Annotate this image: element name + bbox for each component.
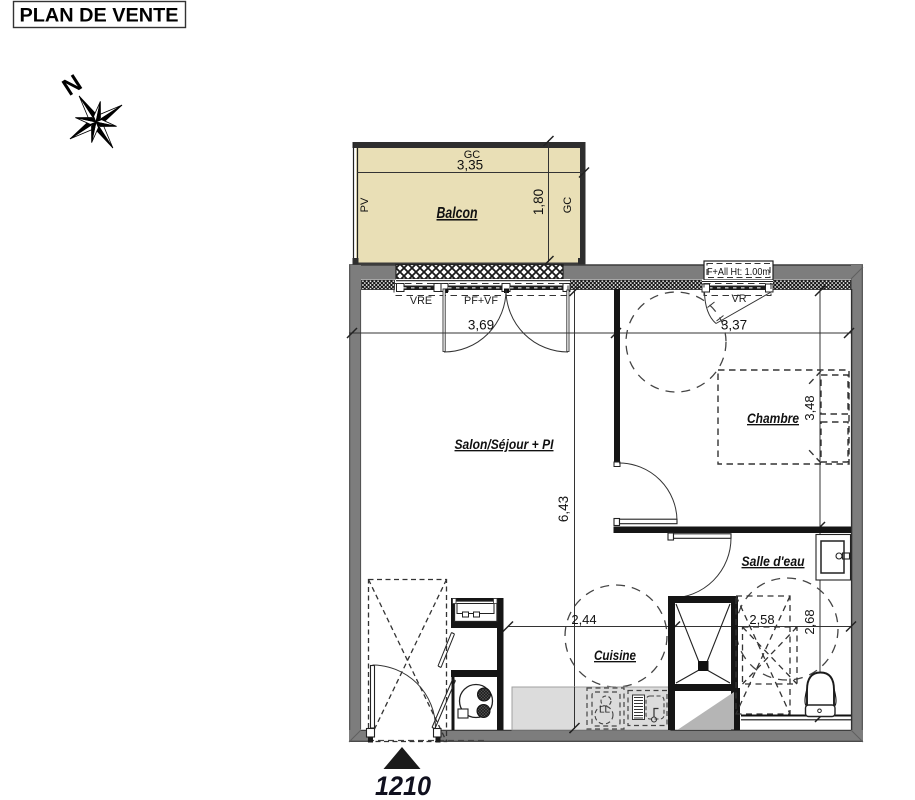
svg-text:6,43: 6,43 <box>556 496 571 522</box>
svg-text:2,58: 2,58 <box>749 612 774 627</box>
svg-text:3,69: 3,69 <box>468 318 494 333</box>
svg-text:GC: GC <box>562 197 574 214</box>
svg-text:Chambre: Chambre <box>747 411 799 426</box>
svg-text:2,44: 2,44 <box>571 612 596 627</box>
svg-text:LL: LL <box>599 705 611 716</box>
svg-text:3,35: 3,35 <box>457 158 483 173</box>
svg-text:Salle d'eau: Salle d'eau <box>742 554 806 569</box>
svg-text:VRE: VRE <box>410 295 432 307</box>
svg-text:Salon/Séjour + PI: Salon/Séjour + PI <box>455 437 554 452</box>
svg-text:F+All Ht: 1.00m: F+All Ht: 1.00m <box>707 267 770 278</box>
svg-text:3,37: 3,37 <box>721 318 747 333</box>
svg-text:PLAN DE VENTE: PLAN DE VENTE <box>20 5 179 27</box>
svg-text:VR: VR <box>732 293 747 305</box>
svg-text:3,48: 3,48 <box>802 395 817 420</box>
svg-text:1,80: 1,80 <box>531 189 546 215</box>
svg-text:Cuisine: Cuisine <box>594 648 636 663</box>
svg-text:1210: 1210 <box>375 771 431 800</box>
svg-text:2,68: 2,68 <box>802 609 817 634</box>
svg-text:Balcon: Balcon <box>437 205 478 222</box>
svg-text:PF+VF: PF+VF <box>464 295 498 307</box>
svg-text:PV: PV <box>359 197 371 212</box>
